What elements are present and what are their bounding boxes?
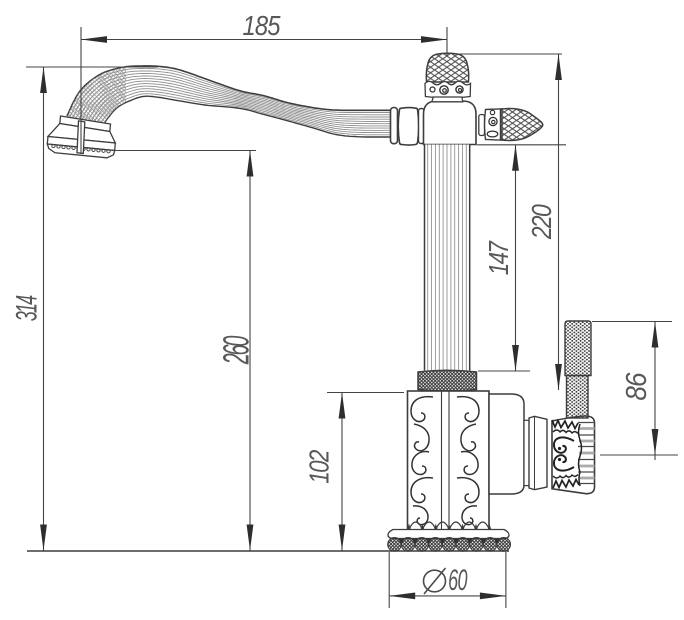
svg-text:102: 102 [304, 450, 335, 484]
svg-text:314: 314 [11, 295, 44, 321]
svg-text:86: 86 [620, 372, 653, 401]
svg-text:260: 260 [218, 336, 258, 365]
svg-text:185: 185 [242, 9, 280, 41]
svg-text:220: 220 [527, 203, 558, 240]
svg-text:60: 60 [448, 564, 468, 597]
svg-text:147: 147 [484, 240, 515, 275]
